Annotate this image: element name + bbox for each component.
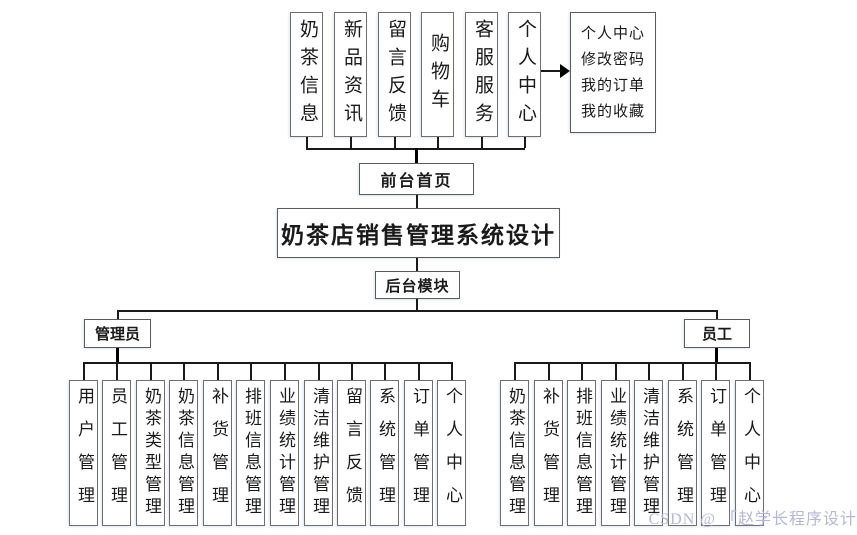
connector (250, 362, 252, 380)
admin-restock-mgmt: 补货管理 (203, 380, 232, 526)
connector (217, 362, 219, 380)
admin-order-mgmt: 订单管理 (404, 380, 433, 526)
connector (481, 137, 483, 148)
connector (318, 362, 320, 380)
connector (451, 362, 453, 380)
connector (514, 362, 516, 380)
connector (351, 362, 353, 380)
admin-message-feedback: 留言反馈 (337, 380, 366, 526)
connector (284, 362, 286, 380)
module-personal-center: 个人中心 (508, 12, 541, 137)
admin-cleaning-maintenance-mgmt: 清洁维护管理 (304, 380, 333, 526)
connector (615, 362, 617, 380)
staff-restock-mgmt: 补货管理 (534, 380, 563, 526)
personal-center-detail-box: 个人中心 修改密码 我的订单 我的收藏 (570, 12, 656, 133)
role-admin-box: 管理员 (84, 319, 151, 348)
arrow-right-icon (560, 64, 570, 78)
admin-system-mgmt: 系统管理 (370, 380, 399, 526)
detail-line: 修改密码 (581, 47, 645, 73)
connector (749, 362, 751, 380)
connector (581, 362, 583, 380)
connector (306, 137, 308, 148)
connector (384, 362, 386, 380)
connector-rail-admin (83, 362, 451, 364)
admin-milk-tea-info-mgmt: 奶茶信息管理 (169, 380, 198, 526)
connector (150, 362, 152, 380)
arrow-line (541, 70, 562, 72)
backend-module-box: 后台模块 (375, 271, 460, 299)
connector (682, 362, 684, 380)
connector (394, 137, 396, 148)
connector (415, 148, 418, 163)
admin-personal-center: 个人中心 (437, 380, 466, 526)
role-staff-box: 员工 (684, 319, 750, 348)
connector (715, 348, 718, 363)
admin-shift-info-mgmt: 排班信息管理 (236, 380, 265, 526)
system-structure-diagram: 奶茶信息 新品资讯 留言反馈 购物车 客服服务 个人中心 个人中心 修改密码 我… (0, 0, 857, 535)
connector (524, 137, 526, 148)
front-home-box: 前台首页 (359, 163, 474, 195)
connector (715, 362, 717, 380)
connector (418, 362, 420, 380)
connector (116, 348, 119, 363)
detail-line: 个人中心 (581, 21, 645, 47)
module-shopping-cart: 购物车 (421, 12, 454, 137)
connector (416, 195, 418, 208)
connector (116, 362, 118, 380)
connector-rail-backend (117, 310, 717, 312)
connector (416, 299, 418, 310)
connector (716, 310, 718, 319)
connector (117, 310, 119, 319)
system-title-box: 奶茶店销售管理系统设计 (277, 208, 560, 258)
connector (548, 362, 550, 380)
admin-milk-tea-type-mgmt: 奶茶类型管理 (136, 380, 165, 526)
staff-milk-tea-info-mgmt: 奶茶信息管理 (500, 380, 529, 526)
connector (183, 362, 185, 380)
admin-staff-mgmt: 员工管理 (102, 380, 131, 526)
staff-performance-stats-mgmt: 业绩统计管理 (601, 380, 630, 526)
module-new-product-news: 新品资讯 (334, 12, 367, 137)
admin-user-mgmt: 用户管理 (69, 380, 98, 526)
connector (350, 137, 352, 148)
detail-line: 我的订单 (581, 73, 645, 99)
connector (437, 137, 439, 148)
module-customer-service: 客服服务 (465, 12, 498, 137)
module-message-feedback: 留言反馈 (378, 12, 411, 137)
csdn-watermark: CSDN @ 「赵学长程序设计 (649, 505, 857, 529)
connector (83, 362, 85, 380)
admin-performance-stats-mgmt: 业绩统计管理 (270, 380, 299, 526)
detail-line: 我的收藏 (581, 99, 645, 125)
module-milk-tea-info: 奶茶信息 (290, 12, 323, 137)
connector (648, 362, 650, 380)
staff-shift-info-mgmt: 排班信息管理 (567, 380, 596, 526)
connector (416, 258, 418, 271)
